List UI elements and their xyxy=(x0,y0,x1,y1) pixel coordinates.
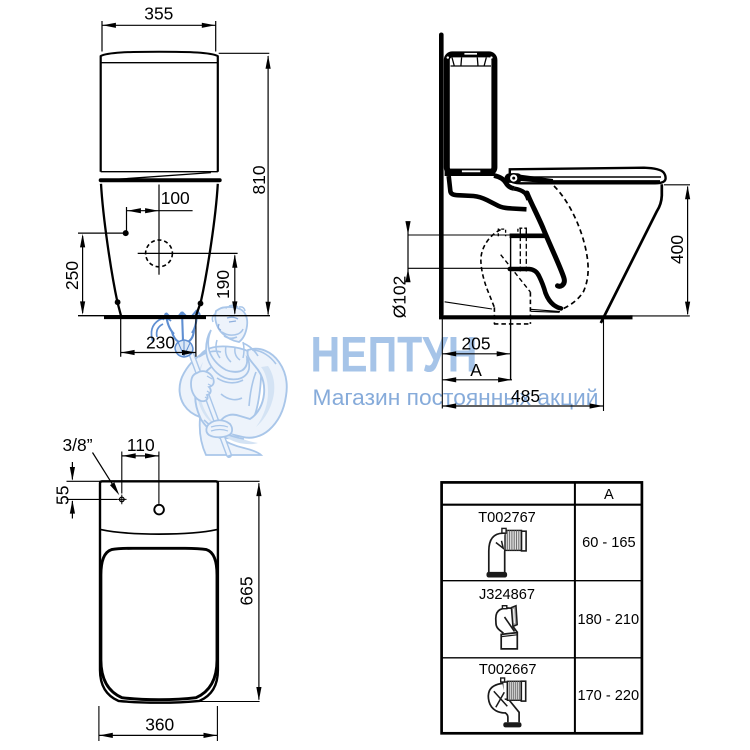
svg-text:665: 665 xyxy=(236,576,256,605)
svg-text:100: 100 xyxy=(161,188,190,208)
svg-text:205: 205 xyxy=(461,334,490,354)
svg-text:A: A xyxy=(470,360,482,380)
svg-text:Ø102: Ø102 xyxy=(389,276,409,319)
svg-text:170 - 220: 170 - 220 xyxy=(577,688,639,704)
svg-text:485: 485 xyxy=(511,386,540,406)
svg-text:55: 55 xyxy=(52,486,72,505)
svg-text:190: 190 xyxy=(213,270,233,299)
svg-text:110: 110 xyxy=(127,435,155,455)
svg-text:230: 230 xyxy=(146,332,175,352)
svg-text:355: 355 xyxy=(144,3,173,23)
svg-text:250: 250 xyxy=(62,261,82,290)
svg-text:400: 400 xyxy=(667,235,687,264)
svg-text:A: A xyxy=(604,487,614,503)
svg-text:3/8”: 3/8” xyxy=(63,435,93,455)
svg-text:360: 360 xyxy=(145,715,174,735)
svg-text:T002767: T002767 xyxy=(478,510,536,526)
svg-text:J324867: J324867 xyxy=(479,587,535,603)
svg-text:810: 810 xyxy=(249,165,269,194)
svg-text:180 - 210: 180 - 210 xyxy=(577,612,639,628)
svg-text:60 - 165: 60 - 165 xyxy=(582,535,636,551)
svg-text:T002667: T002667 xyxy=(479,662,537,678)
